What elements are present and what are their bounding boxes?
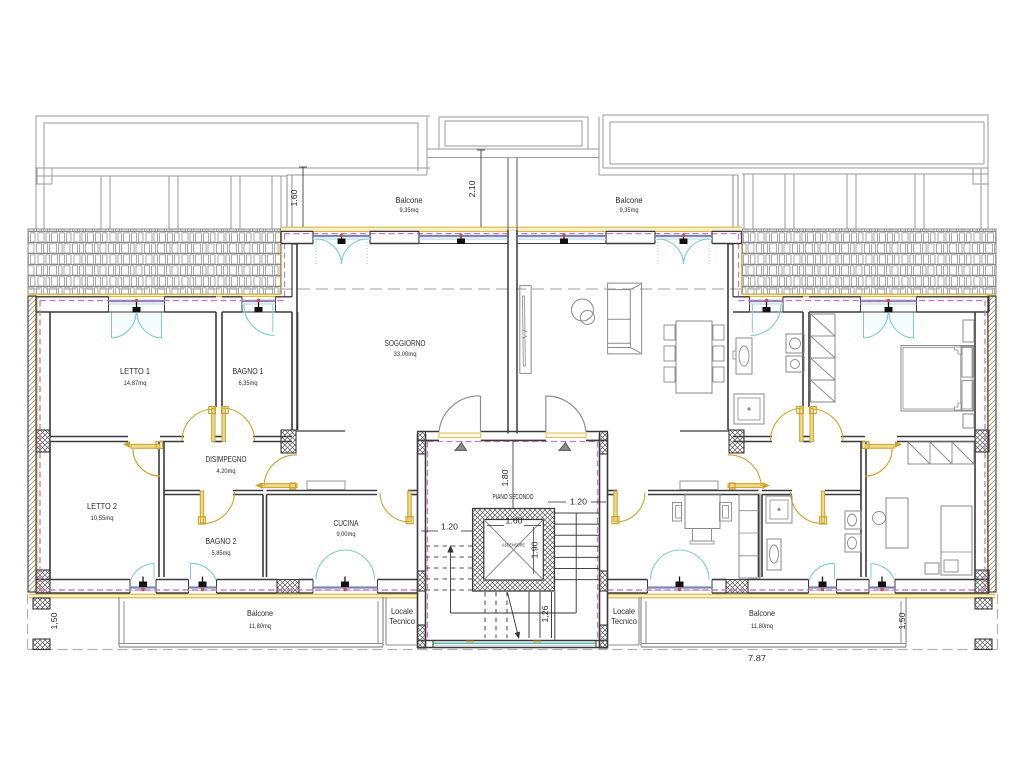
svg-text:CUCINA: CUCINA: [334, 518, 359, 528]
svg-text:9,35mq: 9,35mq: [400, 207, 420, 214]
svg-text:1,50: 1,50: [50, 612, 59, 630]
svg-text:1.90: 1.90: [531, 541, 540, 559]
svg-text:9,35mq: 9,35mq: [620, 207, 640, 214]
svg-text:1.60: 1.60: [506, 517, 524, 526]
svg-text:1,50: 1,50: [898, 612, 907, 630]
svg-text:10,55mq: 10,55mq: [91, 515, 115, 522]
svg-text:1.20: 1.20: [441, 523, 459, 532]
svg-text:33,00mq: 33,00mq: [394, 351, 418, 358]
svg-text:LETTO 2: LETTO 2: [87, 501, 117, 511]
svg-text:Locale: Locale: [391, 607, 413, 616]
svg-text:1,26: 1,26: [541, 605, 550, 623]
svg-text:11,80mq: 11,80mq: [751, 623, 774, 630]
svg-text:LETTO 1: LETTO 1: [120, 366, 150, 376]
svg-text:1.20: 1.20: [570, 498, 588, 507]
svg-text:6,35mq: 6,35mq: [239, 380, 259, 387]
svg-text:ASCENSORE: ASCENSORE: [502, 543, 525, 548]
svg-text:BAGNO 2: BAGNO 2: [206, 536, 237, 546]
svg-text:Tecnico: Tecnico: [389, 617, 416, 626]
svg-text:1.60: 1.60: [290, 189, 299, 207]
svg-text:1.80: 1.80: [501, 469, 510, 487]
svg-text:9,00mq: 9,00mq: [337, 531, 357, 538]
svg-text:14,87mq: 14,87mq: [124, 380, 148, 387]
svg-text:BAGNO 1: BAGNO 1: [233, 366, 264, 376]
svg-text:Tecnico: Tecnico: [611, 617, 638, 626]
svg-text:SOGGIORNO: SOGGIORNO: [385, 338, 426, 348]
svg-text:Balcone: Balcone: [749, 608, 775, 618]
svg-text:7.87: 7.87: [748, 653, 766, 663]
svg-text:Balcone: Balcone: [396, 195, 423, 205]
svg-text:DISIMPEGNO: DISIMPEGNO: [206, 454, 247, 464]
svg-text:Balcone: Balcone: [616, 195, 643, 205]
svg-text:11,80mq: 11,80mq: [249, 623, 272, 630]
svg-text:5,85mq: 5,85mq: [212, 550, 232, 557]
svg-text:Balcone: Balcone: [247, 608, 273, 618]
svg-text:Locale: Locale: [613, 607, 635, 616]
svg-text:2.10: 2.10: [468, 180, 477, 198]
svg-text:4,20mq: 4,20mq: [217, 468, 237, 475]
